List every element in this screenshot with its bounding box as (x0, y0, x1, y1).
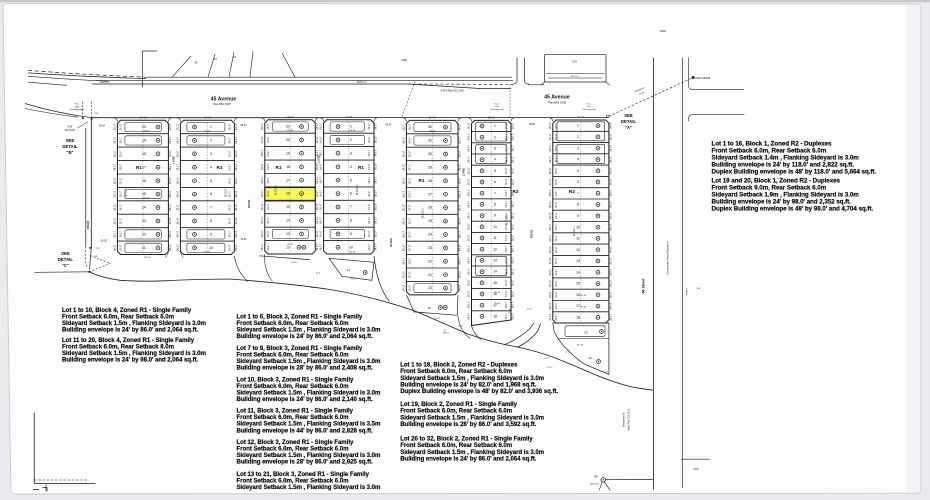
svg-text:26.17: 26.17 (228, 150, 231, 157)
svg-text:7: 7 (577, 191, 579, 195)
svg-text:27: 27 (428, 192, 432, 196)
svg-text:34.17: 34.17 (234, 244, 238, 251)
svg-text:26.17: 26.17 (505, 145, 508, 152)
svg-text:8: 8 (210, 219, 212, 223)
svg-text:SEE: SEE (624, 113, 633, 118)
svg-text:26.17: 26.17 (511, 133, 515, 140)
svg-text:7: 7 (210, 206, 212, 210)
svg-text:34.17: 34.17 (402, 137, 406, 144)
svg-text:26.17: 26.17 (176, 123, 180, 130)
svg-text:26.17: 26.17 (511, 257, 515, 264)
svg-text:95.15: 95.15 (527, 309, 533, 311)
svg-text:34.17: 34.17 (548, 156, 552, 163)
svg-text:BLOCK 3: BLOCK 3 (357, 184, 359, 194)
svg-text:26.17: 26.17 (319, 149, 323, 156)
svg-text:26.17: 26.17 (267, 176, 270, 183)
svg-text:BLOCK 1: BLOCK 1 (574, 225, 576, 235)
svg-text:34.17: 34.17 (176, 137, 180, 144)
svg-text:26.17: 26.17 (548, 280, 552, 287)
svg-text:34.17: 34.17 (511, 122, 515, 129)
svg-text:114.45: 114.45 (345, 116, 353, 119)
svg-text:11: 11 (347, 268, 350, 272)
svg-text:5: 5 (210, 179, 212, 183)
svg-text:34.17: 34.17 (511, 201, 515, 208)
svg-text:34.17: 34.17 (402, 164, 406, 171)
svg-text:34.17: 34.17 (609, 122, 613, 129)
svg-text:Sideyard Setback 1.4m , Flanki: Sideyard Setback 1.4m , Flanking Sideyar… (712, 154, 860, 161)
svg-text:26.17: 26.17 (548, 167, 552, 174)
svg-text:26.17: 26.17 (511, 178, 515, 185)
svg-text:34.17: 34.17 (609, 302, 613, 309)
svg-text:26.17: 26.17 (505, 122, 508, 129)
svg-text:104.80: 104.80 (580, 295, 587, 297)
svg-text:14: 14 (493, 270, 497, 274)
svg-text:34.17: 34.17 (458, 271, 462, 278)
svg-text:26.17: 26.17 (119, 177, 122, 184)
svg-text:18: 18 (576, 316, 580, 320)
svg-text:164.15: 164.15 (144, 257, 151, 259)
svg-text:26.17: 26.17 (119, 190, 122, 197)
svg-text:6: 6 (350, 192, 352, 196)
svg-text:25: 25 (428, 219, 432, 223)
svg-text:26.17: 26.17 (402, 177, 406, 184)
svg-text:R1: R1 (358, 165, 364, 170)
svg-text:16: 16 (142, 179, 146, 183)
svg-text:34.17: 34.17 (113, 231, 117, 238)
svg-text:34.17: 34.17 (555, 291, 558, 298)
svg-text:16: 16 (286, 192, 290, 196)
svg-text:21: 21 (286, 125, 290, 129)
svg-text:ROAD: ROAD (86, 221, 90, 230)
svg-text:34.17: 34.17 (168, 244, 172, 251)
svg-text:Building envelope is 24' by 86: Building envelope is 24' by 86.0' and 2,… (400, 455, 537, 462)
svg-text:26.17: 26.17 (505, 301, 508, 308)
svg-text:34.17: 34.17 (234, 123, 238, 130)
svg-text:104.86: 104.86 (580, 306, 587, 308)
svg-text:5: 5 (577, 169, 579, 173)
svg-text:SW 1/4 C: SW 1/4 C (590, 483, 599, 485)
svg-text:34.17: 34.17 (511, 279, 515, 286)
svg-text:26.17: 26.17 (368, 150, 371, 157)
svg-text:Lot 1 to 16, Block 1, Zoned R2: Lot 1 to 16, Block 1, Zoned R2 - Duplexe… (712, 140, 832, 147)
svg-text:55.03: 55.03 (99, 125, 105, 127)
svg-text:8: 8 (494, 203, 496, 207)
svg-text:11: 11 (576, 237, 580, 241)
svg-text:34.17: 34.17 (467, 212, 471, 219)
svg-text:34.17: 34.17 (368, 163, 371, 170)
svg-text:34.17: 34.17 (234, 177, 238, 184)
svg-text:26.17: 26.17 (609, 257, 613, 264)
svg-text:29.28: 29.28 (543, 358, 549, 360)
svg-text:26.17: 26.17 (467, 145, 471, 152)
svg-text:28: 28 (428, 179, 432, 183)
svg-text:26.17: 26.17 (176, 217, 180, 224)
svg-text:26.17: 26.17 (408, 190, 411, 197)
svg-text:4: 4 (210, 165, 212, 169)
svg-text:2: 2 (350, 138, 352, 142)
svg-text:(Undesignated): (Undesignated) (582, 108, 596, 111)
svg-text:34.17: 34.17 (113, 137, 117, 144)
svg-text:Building envelope is 24' by 98: Building envelope is 24' by 98.0' and 2,… (62, 357, 199, 364)
svg-text:26.17: 26.17 (228, 177, 231, 184)
svg-text:34.17: 34.17 (168, 217, 172, 224)
svg-text:3: 3 (577, 146, 579, 150)
svg-text:34.17: 34.17 (505, 156, 508, 163)
svg-text:34.17: 34.17 (505, 290, 508, 297)
svg-text:34.17: 34.17 (113, 190, 117, 197)
svg-text:14: 14 (286, 219, 290, 223)
svg-text:26.17: 26.17 (168, 231, 172, 238)
svg-text:26.17: 26.17 (119, 217, 122, 224)
svg-text:26.17: 26.17 (234, 137, 238, 144)
svg-text:BLOCK 2: BLOCK 2 (507, 214, 509, 224)
svg-text:131.43: 131.43 (577, 344, 584, 346)
svg-text:26: 26 (428, 206, 432, 210)
svg-text:32: 32 (428, 125, 432, 129)
svg-text:123.42: 123.42 (143, 131, 150, 133)
svg-text:34.17: 34.17 (548, 178, 552, 185)
svg-text:26.17: 26.17 (228, 123, 231, 130)
svg-text:R1: R1 (419, 178, 425, 183)
svg-text:26.17: 26.17 (176, 204, 180, 211)
svg-text:26.17: 26.17 (609, 189, 613, 196)
svg-text:34.17: 34.17 (555, 212, 558, 219)
svg-text:34.17: 34.17 (176, 190, 180, 197)
svg-text:"C": "C" (62, 263, 69, 268)
svg-text:34.17: 34.17 (234, 150, 238, 157)
svg-text:6: 6 (210, 192, 212, 196)
svg-text:Building envelope is 24' by 86: Building envelope is 24' by 86.0' and 2,… (62, 327, 199, 334)
svg-text:34.17: 34.17 (228, 164, 231, 171)
svg-text:114.45: 114.45 (429, 131, 436, 133)
svg-text:34.17: 34.17 (113, 163, 117, 170)
svg-text:LANE: LANE (461, 168, 465, 176)
svg-text:26.17: 26.17 (119, 123, 122, 130)
svg-text:26.17: 26.17 (408, 244, 411, 251)
svg-text:34.17: 34.17 (555, 156, 558, 163)
svg-text:29B: 29B (697, 288, 701, 290)
svg-text:26.17: 26.17 (511, 268, 515, 275)
svg-text:26.17: 26.17 (458, 204, 462, 211)
svg-text:34.17: 34.17 (319, 230, 323, 237)
svg-text:26.17: 26.17 (260, 217, 264, 224)
svg-text:34.17: 34.17 (315, 123, 319, 130)
svg-text:26.17: 26.17 (260, 203, 264, 210)
svg-text:9A: 9A (233, 55, 236, 59)
svg-text:34.17: 34.17 (408, 137, 411, 144)
svg-text:26.17: 26.17 (260, 243, 264, 250)
svg-text:DETAIL: DETAIL (621, 119, 637, 124)
svg-text:BLOCK 2: BLOCK 2 (423, 207, 425, 217)
svg-text:122.28: 122.28 (143, 198, 150, 200)
svg-text:34.17: 34.17 (505, 189, 508, 196)
svg-text:26.17: 26.17 (555, 167, 558, 174)
svg-text:34.17: 34.17 (609, 201, 613, 208)
svg-text:26.17: 26.17 (113, 204, 117, 211)
svg-text:34.17: 34.17 (374, 149, 378, 156)
svg-text:"B": "B" (66, 150, 73, 155)
svg-text:26.17: 26.17 (374, 203, 378, 210)
svg-text:134.88: 134.88 (494, 292, 501, 294)
svg-text:34.17: 34.17 (402, 257, 406, 264)
svg-text:26.17: 26.17 (609, 178, 613, 185)
svg-text:MP: MP (594, 476, 598, 478)
svg-text:26.17: 26.17 (467, 167, 471, 174)
svg-text:Sideyard Setback 1.9m , Flanki: Sideyard Setback 1.9m , Flanking Sideyar… (712, 192, 860, 199)
svg-text:26.17: 26.17 (234, 163, 238, 170)
svg-text:61.30: 61.30 (578, 116, 585, 119)
svg-text:9A: 9A (194, 61, 197, 65)
svg-text:P.U.: P.U. (75, 104, 79, 106)
svg-text:1: 1 (210, 125, 212, 129)
svg-text:34.17: 34.17 (176, 231, 180, 238)
svg-text:26.17: 26.17 (374, 230, 378, 237)
svg-text:1: 1 (494, 124, 496, 128)
svg-text:3: 3 (350, 151, 352, 155)
svg-text:ROAD: ROAD (389, 238, 393, 247)
svg-text:114.45: 114.45 (287, 130, 294, 132)
svg-text:Lot 19 and 20, Block 1, Zoned: Lot 19 and 20, Block 1, Zoned R2 - Duple… (712, 178, 841, 185)
svg-text:26.17: 26.17 (168, 137, 172, 144)
svg-text:26 P.U.L.: 26 P.U.L. (571, 76, 580, 78)
svg-text:34.17: 34.17 (315, 243, 319, 250)
svg-text:34.17: 34.17 (260, 136, 264, 143)
svg-text:26.17: 26.17 (505, 201, 508, 208)
svg-text:34.17: 34.17 (374, 176, 378, 183)
svg-text:26.17: 26.17 (267, 190, 270, 197)
svg-text:2: 2 (210, 139, 212, 143)
svg-text:34.17: 34.17 (548, 291, 552, 298)
svg-text:23: 23 (428, 246, 432, 250)
svg-text:26.17: 26.17 (467, 201, 471, 208)
svg-text:26.17: 26.17 (113, 177, 117, 184)
svg-text:34.17: 34.17 (315, 176, 319, 183)
svg-text:26.17: 26.17 (368, 244, 371, 251)
svg-text:10: 10 (576, 225, 580, 229)
svg-text:26.17: 26.17 (548, 268, 552, 275)
svg-text:6: 6 (577, 180, 579, 184)
svg-text:3: 3 (210, 152, 212, 156)
svg-text:34.17: 34.17 (548, 314, 552, 321)
svg-text:6: 6 (494, 180, 496, 184)
svg-text:26.17: 26.17 (368, 217, 371, 224)
svg-text:5: 5 (350, 178, 352, 182)
svg-text:34.17: 34.17 (609, 167, 613, 174)
svg-text:26.17: 26.17 (548, 302, 552, 309)
svg-text:1: 1 (577, 124, 579, 128)
svg-text:34.17: 34.17 (548, 235, 552, 242)
svg-text:S.R.W Plan 822 3145: S.R.W Plan 822 3145 (441, 89, 465, 92)
svg-text:8: 8 (350, 219, 352, 223)
svg-text:Building envelope is 24' by 11: Building envelope is 24' by 118.0' and 2… (712, 162, 855, 169)
svg-text:34.17: 34.17 (402, 190, 406, 197)
svg-text:34.17: 34.17 (408, 164, 411, 171)
svg-text:Building envelope is 28' by 86: Building envelope is 28' by 86.0' and 2,… (237, 365, 374, 372)
svg-text:LANE: LANE (172, 156, 176, 164)
svg-text:Remainder of: Remainder of (623, 412, 626, 427)
svg-text:34.17: 34.17 (467, 290, 471, 297)
svg-text:53.00': 53.00' (101, 241, 108, 243)
svg-text:146.02: 146.02 (204, 251, 211, 253)
svg-text:19: 19 (142, 139, 146, 143)
svg-text:26.17: 26.17 (319, 203, 323, 210)
svg-text:SEE: SEE (66, 138, 75, 143)
svg-text:Front Setback 9.0m, Rear Setba: Front Setback 9.0m, Rear Setback 6.0m (712, 185, 827, 192)
svg-text:8: 8 (577, 203, 579, 207)
svg-text:26.17: 26.17 (467, 223, 471, 230)
svg-text:"A": "A" (625, 125, 632, 130)
svg-text:R1: R1 (136, 165, 142, 170)
svg-text:26.17: 26.17 (319, 123, 323, 130)
svg-text:34.17: 34.17 (228, 231, 231, 238)
svg-text:26.17: 26.17 (176, 244, 180, 251)
svg-text:26.17: 26.17 (408, 271, 411, 278)
svg-text:26.17: 26.17 (319, 176, 323, 183)
svg-text:68 Street: 68 Street (642, 278, 646, 294)
svg-text:11: 11 (142, 246, 146, 250)
svg-text:26.17: 26.17 (113, 217, 117, 224)
svg-text:34.17: 34.17 (267, 203, 270, 210)
svg-text:34.17: 34.17 (267, 136, 270, 143)
svg-text:26.17: 26.17 (113, 244, 117, 251)
svg-text:26.17: 26.17 (609, 235, 613, 242)
svg-text:19: 19 (427, 306, 431, 310)
svg-text:114.45: 114.45 (429, 117, 437, 120)
svg-text:26.17: 26.17 (228, 217, 231, 224)
svg-text:26.17: 26.17 (119, 244, 122, 251)
svg-text:26.17: 26.17 (408, 150, 411, 157)
svg-text:4: 4 (494, 158, 496, 162)
svg-text:Building envelope is 24' by 86: Building envelope is 24' by 86.0' and 2,… (237, 333, 374, 340)
svg-text:Duplex Building envelope is 48: Duplex Building envelope is 48' by 98.0'… (712, 206, 874, 213)
svg-text:34.17: 34.17 (260, 163, 264, 170)
svg-text:BLOCK 4: BLOCK 4 (226, 186, 228, 196)
svg-text:131°10′02″: 131°10′02″ (64, 130, 75, 132)
svg-text:65.07: 65.07 (386, 125, 392, 127)
svg-text:14: 14 (142, 206, 146, 210)
svg-text:26.17: 26.17 (368, 123, 371, 130)
svg-text:26.17: 26.17 (609, 291, 613, 298)
svg-text:18: 18 (142, 152, 146, 156)
svg-text:26.17: 26.17 (113, 123, 117, 130)
svg-text:26.17: 26.17 (267, 123, 270, 130)
svg-text:26.17: 26.17 (548, 201, 552, 208)
svg-text:R1: R1 (276, 165, 282, 170)
svg-text:123.42: 123.42 (287, 244, 294, 246)
svg-text:26.17: 26.17 (374, 163, 378, 170)
svg-text:104.00: 104.00 (204, 117, 212, 120)
svg-text:2: 2 (577, 135, 579, 139)
svg-text:Building envelope is 24' by 86: Building envelope is 24' by 86.0' and 2,… (237, 396, 374, 403)
svg-text:26.17: 26.17 (228, 190, 231, 197)
svg-text:34.17: 34.17 (267, 163, 270, 170)
svg-text:26.17: 26.17 (555, 201, 558, 208)
svg-text:34.17: 34.17 (511, 223, 515, 230)
svg-text:34.17: 34.17 (555, 190, 558, 197)
svg-text:21: 21 (428, 273, 432, 277)
svg-text:26.17: 26.17 (315, 163, 319, 170)
svg-text:29: 29 (428, 166, 432, 170)
svg-text:4: 4 (577, 158, 579, 162)
svg-text:26.17: 26.17 (260, 123, 264, 130)
svg-text:26.17: 26.17 (467, 122, 471, 129)
svg-text:34.17: 34.17 (228, 137, 231, 144)
svg-text:34.17: 34.17 (319, 163, 323, 170)
svg-text:26.17: 26.17 (267, 244, 270, 251)
svg-text:26.17: 26.17 (234, 204, 238, 211)
svg-text:R2: R2 (569, 189, 575, 194)
svg-text:26.17: 26.17 (467, 279, 471, 286)
svg-text:15: 15 (286, 205, 290, 209)
svg-text:26.17: 26.17 (113, 150, 117, 157)
svg-text:26.17: 26.17 (402, 217, 406, 224)
svg-text:34.17: 34.17 (505, 268, 508, 275)
svg-text:26.17: 26.17 (467, 245, 471, 252)
svg-text:26.17: 26.17 (374, 190, 378, 197)
svg-text:54.00: 54.00 (291, 262, 297, 264)
svg-text:20: 20 (584, 330, 588, 334)
svg-text:26.17: 26.17 (408, 284, 411, 291)
svg-text:34.17: 34.17 (119, 137, 122, 144)
svg-text:34.17: 34.17 (458, 244, 462, 251)
svg-text:19: 19 (588, 356, 592, 360)
svg-text:34.17: 34.17 (319, 190, 323, 197)
svg-text:34.17: 34.17 (267, 230, 270, 237)
svg-text:10: 10 (493, 225, 497, 229)
svg-text:34.17: 34.17 (402, 231, 406, 238)
svg-text:26.17: 26.17 (505, 167, 508, 174)
svg-text:34.17: 34.17 (609, 246, 613, 253)
svg-text:20: 20 (286, 138, 290, 142)
svg-text:34.17: 34.17 (168, 177, 172, 184)
svg-text:34.17: 34.17 (548, 133, 552, 140)
svg-text:26.17: 26.17 (458, 190, 462, 197)
svg-text:15: 15 (142, 192, 146, 196)
svg-text:26.17: 26.17 (368, 190, 371, 197)
svg-text:21.20: 21.20 (603, 372, 609, 374)
svg-text:Street: Street (684, 288, 688, 295)
svg-text:26.17: 26.17 (408, 123, 411, 130)
svg-text:34.17: 34.17 (555, 133, 558, 140)
svg-text:15: 15 (576, 282, 580, 286)
svg-text:9: 9 (577, 214, 579, 218)
svg-text:123.44: 123.44 (204, 131, 211, 133)
svg-text:34.17: 34.17 (374, 217, 378, 224)
svg-text:Building envelope is 28' by 86: Building envelope is 28' by 86.0' and 3,… (400, 421, 537, 428)
svg-text:26.17: 26.17 (555, 122, 558, 129)
svg-text:104.15: 104.15 (139, 117, 147, 120)
svg-text:26.17: 26.17 (402, 271, 406, 278)
svg-text:34.17: 34.17 (119, 164, 122, 171)
svg-text:34.17: 34.17 (548, 257, 552, 264)
svg-text:Duplex Building envelope is 48: Duplex Building envelope is 48' by 118.0… (712, 169, 877, 176)
svg-text:34.17: 34.17 (119, 204, 122, 211)
svg-text:34.17: 34.17 (609, 223, 613, 230)
svg-text:34.17: 34.17 (374, 123, 378, 130)
svg-text:26.17: 26.17 (511, 156, 515, 163)
svg-text:(Undesignated): (Undesignated) (490, 108, 504, 111)
svg-text:26.17: 26.17 (408, 177, 411, 184)
svg-text:0.54: 0.54 (68, 127, 73, 129)
svg-text:12: 12 (493, 247, 497, 251)
svg-text:26.17: 26.17 (505, 257, 508, 264)
svg-text:34.17: 34.17 (168, 123, 172, 130)
svg-text:26.17: 26.17 (609, 156, 613, 163)
svg-text:26.17: 26.17 (555, 257, 558, 264)
svg-text:26.17: 26.17 (168, 190, 172, 197)
svg-text:34.17: 34.17 (458, 217, 462, 224)
svg-text:26.17: 26.17 (315, 190, 319, 197)
